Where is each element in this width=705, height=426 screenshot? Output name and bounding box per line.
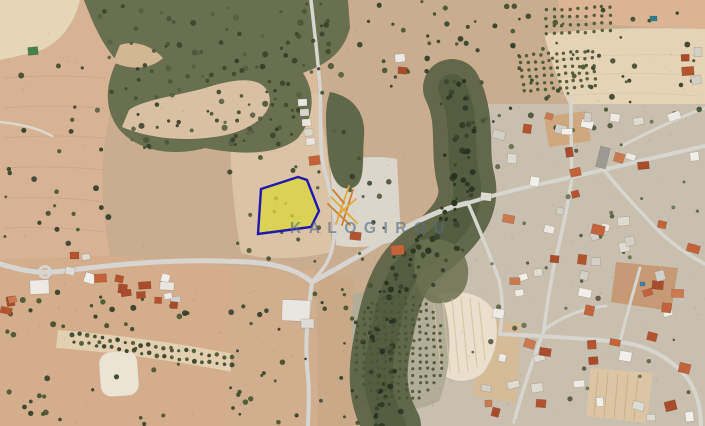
tree-dot: [391, 23, 394, 26]
tree-dot: [248, 103, 251, 106]
tree-dot: [382, 68, 388, 74]
terrain-speck: [318, 90, 319, 91]
tree-dot: [627, 79, 631, 83]
orchard-tree-dot: [565, 80, 568, 83]
orchard-tree-dot: [518, 55, 521, 58]
orchard-tree-dot: [396, 338, 399, 341]
tree-dot: [424, 56, 430, 62]
tree-dot: [455, 42, 458, 45]
tree-dot: [338, 72, 344, 78]
orchard-tree-dot: [439, 324, 442, 327]
orchard-tree-dot: [433, 345, 436, 348]
tree-dot: [132, 348, 137, 353]
terrain-speck: [608, 282, 609, 283]
tree-dot: [243, 399, 249, 405]
orchard-tree-dot: [356, 324, 359, 327]
terrain-speck: [255, 162, 256, 163]
terrain-speck: [207, 10, 209, 12]
tree-dot: [176, 124, 179, 127]
tree-dot: [205, 79, 209, 83]
orchard-tree-dot: [425, 309, 428, 312]
landmark-building-roof: [395, 53, 406, 62]
tree-dot: [440, 206, 443, 209]
tree-dot: [354, 320, 358, 324]
orchard-tree-dot: [370, 389, 373, 392]
orchard-tree-dot: [545, 25, 548, 28]
tree-dot: [156, 126, 159, 129]
tree-dot: [124, 87, 127, 90]
tree-dot: [492, 23, 497, 28]
tree-dot: [162, 354, 166, 358]
tree-dot: [495, 164, 500, 169]
terrain-speck: [91, 389, 93, 391]
tree-dot: [66, 241, 71, 246]
orchard-tree-dot: [584, 31, 587, 34]
terrain-speck: [489, 93, 490, 94]
orchard-tree-dot: [419, 361, 422, 364]
terrain-speck: [343, 350, 345, 352]
house-roof: [690, 152, 700, 162]
tree-dot: [37, 221, 41, 225]
orchard-tree-dot: [397, 382, 400, 385]
orchard-tree-dot: [411, 347, 414, 350]
tree-dot: [474, 20, 477, 23]
tree-dot: [207, 360, 211, 364]
terrain-speck: [648, 57, 649, 58]
orchard-tree-dot: [355, 332, 358, 335]
tree-dot: [28, 411, 33, 416]
terrain-speck: [347, 130, 349, 132]
terrain-speck: [53, 377, 54, 378]
tree-dot: [621, 75, 624, 78]
tree-dot: [488, 339, 493, 344]
tree-dot: [210, 112, 214, 116]
terrain-speck: [342, 133, 344, 135]
orchard-tree-dot: [391, 375, 394, 378]
terrain-speck: [467, 114, 468, 115]
tree-dot: [343, 293, 346, 296]
terrain-speck: [58, 307, 60, 309]
orchard-tree-dot: [438, 339, 441, 342]
tree-dot: [264, 308, 269, 313]
house-roof: [562, 128, 573, 134]
tree-dot: [150, 69, 154, 73]
tree-dot: [177, 314, 183, 320]
tree-dot: [262, 101, 268, 107]
terrain-speck: [27, 333, 29, 335]
tree-dot: [146, 144, 151, 149]
satellite-map-canvas[interactable]: KALOGIROU: [0, 0, 705, 426]
tree-dot: [140, 352, 143, 355]
tree-dot: [466, 190, 469, 193]
terrain-speck: [21, 34, 23, 36]
terrain-speck: [280, 173, 281, 174]
tree-dot: [215, 352, 219, 356]
tree-dot: [304, 358, 307, 361]
tree-dot: [349, 174, 354, 179]
terrain-speck: [593, 180, 595, 182]
house-roof: [531, 383, 544, 393]
tree-dot: [512, 326, 517, 331]
orchard-tree-dot: [571, 79, 574, 82]
orchard-tree-dot: [377, 366, 380, 369]
house-roof: [539, 347, 552, 357]
tree-dot: [320, 32, 325, 37]
terrain-speck: [262, 158, 264, 160]
terrain-speck: [189, 350, 191, 352]
terrain-speck: [524, 396, 526, 398]
tree-dot: [87, 341, 90, 344]
tree-dot: [604, 108, 608, 112]
orchard-tree-dot: [398, 346, 401, 349]
tree-dot: [136, 67, 139, 70]
tree-dot: [504, 4, 510, 10]
tree-dot: [147, 350, 152, 355]
terrain-speck: [143, 245, 145, 247]
orchard-tree-dot: [363, 311, 366, 314]
tree-dot: [451, 173, 457, 179]
terrain-speck: [503, 264, 505, 266]
tree-dot: [424, 69, 429, 74]
orchard-tree-dot: [405, 353, 408, 356]
tree-dot: [362, 195, 365, 198]
tree-dot: [595, 296, 600, 301]
tree-dot: [58, 418, 62, 422]
tree-dot: [7, 167, 11, 171]
tree-dot: [238, 413, 241, 416]
orchard-tree-dot: [398, 367, 401, 370]
tree-dot: [270, 133, 276, 139]
tree-dot: [650, 120, 654, 124]
orchard-tree-dot: [432, 311, 435, 314]
terrain-speck: [211, 327, 212, 328]
tree-dot: [379, 348, 385, 354]
tree-dot: [597, 54, 601, 58]
orchard-tree-dot: [411, 367, 414, 370]
orchard-tree-dot: [377, 347, 380, 350]
tree-dot: [138, 343, 143, 348]
tree-dot: [696, 209, 699, 212]
terrain-speck: [543, 273, 545, 275]
orchard-tree-dot: [432, 332, 435, 335]
orchard-tree-dot: [418, 318, 421, 321]
tree-dot: [350, 316, 354, 320]
orchard-tree-dot: [425, 347, 428, 350]
orchard-tree-dot: [370, 331, 373, 334]
tree-dot: [343, 342, 346, 345]
terrain-speck: [145, 395, 146, 396]
terrain-speck: [387, 164, 389, 166]
terrain-speck: [240, 404, 242, 406]
orchard-tree-dot: [405, 310, 408, 313]
orchard-tree-dot: [594, 84, 597, 87]
orchard-tree-dot: [527, 61, 530, 64]
tree-dot: [200, 360, 204, 364]
tree-dot: [93, 185, 99, 191]
tree-dot: [374, 406, 379, 411]
orchard-tree-dot: [576, 30, 579, 33]
terrain-speck: [431, 400, 433, 402]
orchard-tree-dot: [384, 354, 387, 357]
orchard-tree-dot: [383, 325, 386, 328]
tree-dot: [294, 165, 297, 168]
tree-dot: [394, 75, 397, 78]
tree-dot: [580, 279, 583, 282]
orchard-tree-dot: [390, 389, 393, 392]
tree-dot: [284, 53, 289, 58]
house-roof: [515, 289, 524, 297]
terrain-speck: [145, 60, 146, 61]
tree-dot: [319, 3, 322, 6]
orchard-tree-dot: [559, 87, 562, 90]
terrain-speck: [172, 373, 174, 375]
tree-dot: [186, 311, 190, 315]
tree-dot: [95, 344, 98, 347]
terrain-speck: [477, 215, 479, 217]
tree-dot: [545, 266, 548, 269]
orchard-tree-dot: [545, 32, 548, 35]
orchard-tree-dot: [424, 332, 427, 335]
house-roof: [624, 236, 636, 247]
tree-dot: [85, 333, 90, 338]
terrain-speck: [186, 340, 187, 341]
tree-dot: [222, 355, 226, 359]
tree-dot: [382, 59, 386, 63]
orchard-tree-dot: [585, 72, 588, 75]
terrain-speck: [214, 338, 215, 339]
tree-dot: [466, 122, 471, 127]
tree-dot: [109, 89, 114, 94]
terrain-speck: [667, 187, 668, 188]
orchard-tree-dot: [571, 65, 574, 68]
terrain-speck: [584, 8, 586, 10]
tree-dot: [115, 338, 120, 343]
terrain-speck: [62, 423, 63, 424]
tree-dot: [601, 8, 606, 13]
terrain-speck: [138, 205, 140, 207]
terrain-speck: [255, 335, 257, 337]
tree-dot: [61, 324, 65, 328]
orchard-tree-dot: [363, 332, 366, 335]
tree-dot: [619, 36, 622, 39]
terrain-speck: [40, 358, 41, 359]
terrain-speck: [503, 26, 504, 27]
orchard-tree-dot: [584, 23, 587, 26]
terrain-speck: [121, 213, 122, 214]
orchard-tree-dot: [376, 397, 379, 400]
tree-dot: [102, 9, 107, 14]
orchard-tree-dot: [398, 397, 401, 400]
terrain-speck: [440, 83, 442, 85]
terrain-speck: [272, 173, 273, 174]
orchard-tree-dot: [568, 31, 571, 34]
tree-dot: [566, 194, 571, 199]
orchard-tree-dot: [440, 367, 443, 370]
tree-dot: [461, 177, 466, 182]
tree-dot: [463, 105, 469, 111]
tree-dot: [143, 146, 146, 149]
orchard-tree-dot: [383, 375, 386, 378]
tree-dot: [551, 57, 554, 60]
tree-dot: [279, 10, 282, 13]
tree-dot: [114, 374, 119, 379]
tree-dot: [567, 92, 570, 95]
tree-dot: [125, 349, 129, 353]
orchard-tree-dot: [418, 331, 421, 334]
orchard-tree-dot: [439, 374, 442, 377]
tree-dot: [243, 52, 247, 56]
orchard-tree-dot: [411, 318, 414, 321]
terrain-speck: [270, 391, 271, 392]
terrain-speck: [124, 74, 125, 75]
tree-dot: [295, 413, 299, 417]
tree-dot: [161, 346, 165, 350]
tree-dot: [231, 406, 235, 410]
terrain-speck: [431, 250, 433, 252]
orchard-tree-dot: [398, 316, 401, 319]
tree-dot: [379, 389, 383, 393]
terrain-speck: [476, 259, 478, 261]
tree-dot: [250, 112, 255, 117]
tree-dot: [387, 383, 393, 389]
orchard-tree-dot: [398, 324, 401, 327]
tree-dot: [184, 348, 188, 352]
orchard-tree-dot: [411, 309, 414, 312]
orchard-tree-dot: [362, 339, 365, 342]
terrain-speck: [226, 170, 227, 171]
house-roof: [681, 66, 694, 76]
tree-dot: [610, 214, 615, 219]
orchard-tree-dot: [579, 79, 582, 82]
terrain-speck: [655, 378, 657, 380]
tree-dot: [607, 123, 612, 128]
satellite-map-image: KALOGIROU: [0, 0, 705, 426]
tree-dot: [541, 47, 545, 51]
orchard-tree-dot: [525, 54, 528, 57]
tree-dot: [142, 422, 146, 426]
terrain-speck: [193, 299, 195, 301]
orchard-tree-dot: [563, 65, 566, 68]
tree-dot: [72, 212, 76, 216]
orchard-tree-dot: [391, 381, 394, 384]
tree-dot: [8, 171, 13, 176]
tree-dot: [679, 83, 683, 87]
orchard-tree-dot: [432, 317, 435, 320]
orchard-tree-dot: [550, 81, 553, 84]
terrain-speck: [662, 180, 663, 181]
terrain-speck: [40, 383, 41, 384]
tree-dot: [448, 94, 452, 98]
house-roof: [685, 411, 694, 422]
tree-dot: [170, 92, 175, 97]
tree-dot: [97, 14, 102, 19]
tree-dot: [512, 4, 517, 9]
landmark-building-roof: [70, 252, 79, 259]
tree-dot: [464, 41, 469, 46]
tree-dot: [257, 312, 262, 317]
terrain-speck: [82, 145, 84, 147]
tree-dot: [453, 221, 459, 227]
tree-dot: [192, 349, 196, 353]
tree-dot: [454, 246, 459, 251]
orchard-tree-dot: [397, 294, 400, 297]
tree-dot: [124, 322, 128, 326]
orchard-tree-dot: [362, 375, 365, 378]
tree-dot: [177, 358, 181, 362]
tree-dot: [471, 351, 474, 354]
tree-dot: [321, 301, 324, 304]
tree-dot: [107, 39, 112, 44]
tree-dot: [462, 79, 466, 83]
tree-dot: [93, 315, 97, 319]
terrain-speck: [23, 235, 25, 237]
terrain-speck: [449, 29, 451, 31]
tree-dot: [361, 257, 365, 261]
tree-dot: [247, 248, 252, 253]
orchard-tree-dot: [571, 71, 574, 74]
tree-dot: [236, 349, 239, 352]
orchard-tree-dot: [529, 89, 532, 92]
tree-dot: [201, 75, 204, 78]
orchard-tree-dot: [573, 86, 576, 89]
tree-dot: [628, 255, 632, 259]
tree-dot: [564, 307, 567, 310]
terrain-speck: [659, 18, 660, 19]
orchard-tree-dot: [411, 331, 414, 334]
orchard-tree-dot: [370, 311, 373, 314]
tree-dot: [104, 323, 109, 328]
tree-dot: [41, 412, 45, 416]
orchard-tree-dot: [529, 81, 532, 84]
tree-dot: [408, 263, 412, 267]
orchard-tree-dot: [562, 52, 565, 55]
tree-dot: [296, 34, 301, 39]
tree-dot: [625, 80, 628, 83]
house-roof: [577, 254, 587, 265]
tree-dot: [146, 342, 151, 347]
tree-dot: [192, 64, 196, 68]
orchard-tree-dot: [362, 383, 365, 386]
tree-dot: [109, 307, 115, 313]
terrain-speck: [691, 207, 692, 208]
tree-dot: [292, 115, 296, 119]
terrain-speck: [554, 412, 555, 413]
tree-dot: [177, 42, 183, 48]
tree-dot: [138, 123, 144, 129]
tree-dot: [130, 138, 133, 141]
orchard-tree-dot: [384, 302, 387, 305]
tree-dot: [36, 298, 41, 303]
tree-dot: [291, 168, 296, 173]
orchard-tree-dot: [384, 360, 387, 363]
tree-dot: [586, 387, 590, 391]
tree-dot: [449, 90, 454, 95]
tree-dot: [579, 234, 583, 238]
tree-dot: [266, 256, 271, 261]
terrain-speck: [375, 160, 377, 162]
terrain-speck: [334, 72, 336, 74]
tree-dot: [412, 274, 417, 279]
orchard-tree-dot: [362, 367, 365, 370]
orchard-tree-dot: [418, 304, 421, 307]
tree-dot: [55, 290, 60, 295]
terrain-speck: [217, 271, 218, 272]
tree-dot: [219, 99, 225, 105]
orchard-tree-dot: [369, 325, 372, 328]
terrain-speck: [106, 199, 108, 201]
terrain-speck: [261, 10, 263, 12]
terrain-speck: [9, 170, 10, 171]
